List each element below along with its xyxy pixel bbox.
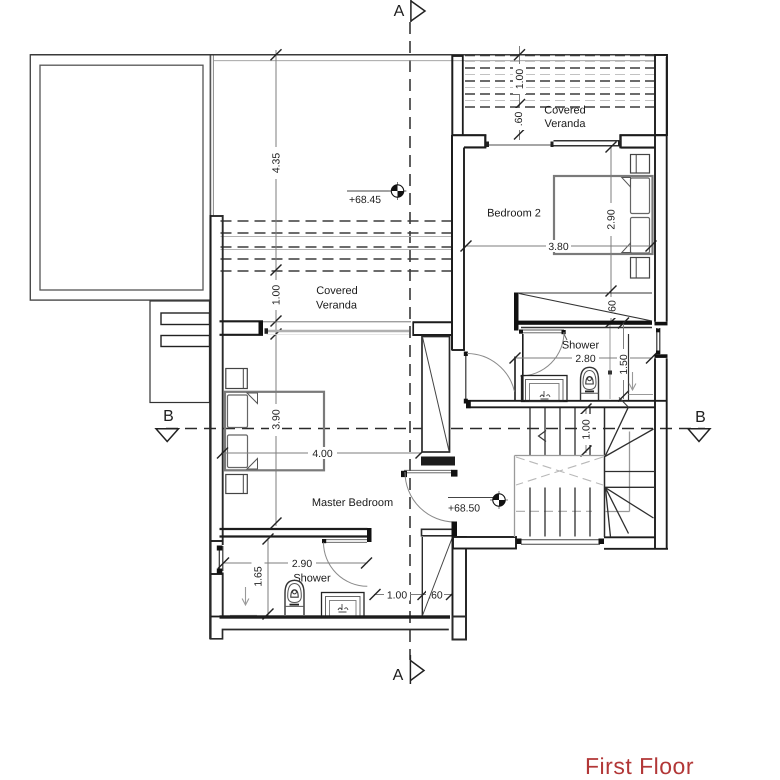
- svg-text:A: A: [394, 3, 405, 20]
- svg-text:Veranda: Veranda: [316, 300, 358, 312]
- svg-text:3.90: 3.90: [272, 409, 283, 429]
- svg-text:Covered: Covered: [544, 105, 586, 117]
- svg-text:Master Bedroom: Master Bedroom: [312, 497, 393, 509]
- svg-text:1.00: 1.00: [515, 69, 526, 89]
- svg-text:1.00: 1.00: [272, 285, 283, 305]
- svg-text:.60: .60: [514, 112, 525, 127]
- svg-text:B: B: [163, 408, 174, 425]
- svg-text:1.00: 1.00: [582, 419, 593, 439]
- svg-text:First Floor: First Floor: [585, 753, 694, 779]
- svg-text:Bedroom 2: Bedroom 2: [487, 208, 541, 220]
- svg-text:3.80: 3.80: [548, 242, 568, 253]
- svg-text:B: B: [695, 409, 706, 426]
- svg-text:2.90: 2.90: [607, 209, 618, 229]
- svg-text:Covered: Covered: [316, 285, 358, 297]
- svg-text:4.00: 4.00: [312, 449, 332, 460]
- svg-text:+68.50: +68.50: [448, 504, 480, 515]
- svg-text:2.90: 2.90: [292, 559, 312, 570]
- svg-text:1.65: 1.65: [254, 566, 265, 586]
- svg-text:4.35: 4.35: [272, 153, 283, 173]
- svg-text:+68.45: +68.45: [349, 195, 381, 206]
- svg-text:A: A: [393, 667, 404, 684]
- svg-text:1.00: 1.00: [387, 590, 407, 601]
- svg-text:2.80: 2.80: [575, 354, 595, 365]
- svg-text:Shower: Shower: [562, 340, 600, 352]
- svg-text:Veranda: Veranda: [545, 118, 587, 130]
